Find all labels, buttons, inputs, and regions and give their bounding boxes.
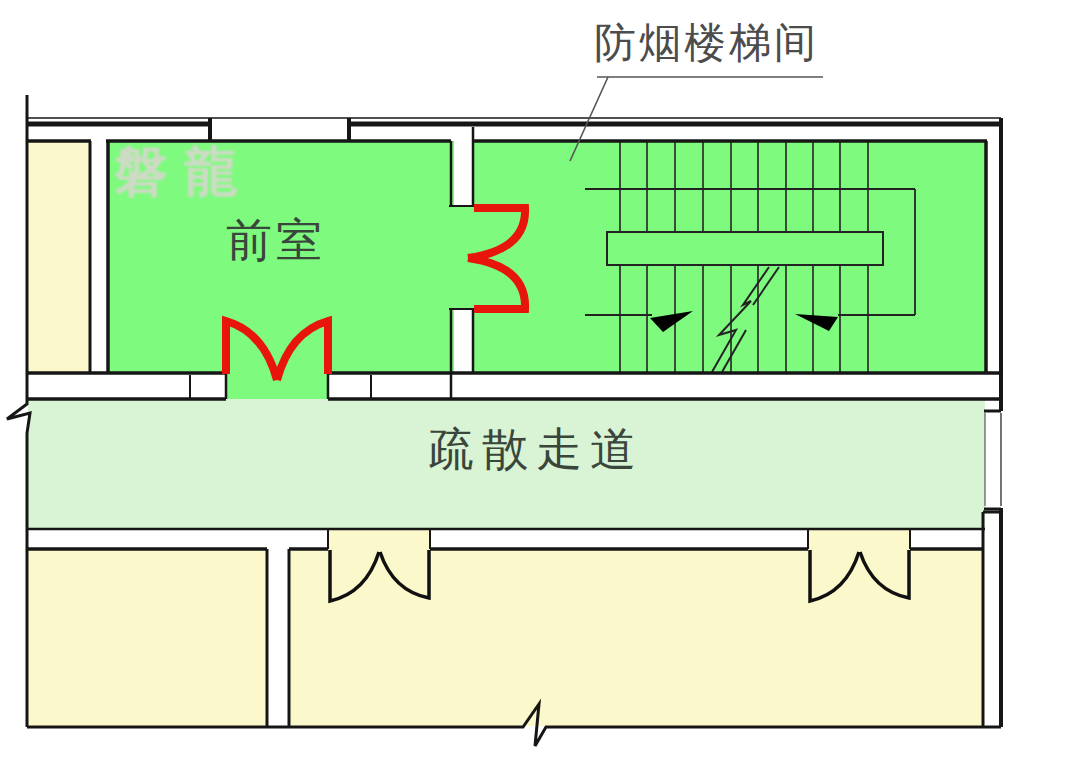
bottom-door-opening-fill-left xyxy=(328,530,431,549)
wall-break-left xyxy=(7,95,30,727)
stairwell-callout-label: 防烟楼梯间 xyxy=(594,22,819,64)
floor-plan-canvas: 磐龍 防烟楼梯间 前室 疏散走道 xyxy=(0,0,1080,758)
watermark: 磐龍 xyxy=(114,144,254,198)
floor-plan-drawing xyxy=(0,0,1080,758)
stair-handrail xyxy=(607,232,883,265)
corridor-label: 疏散走道 xyxy=(428,426,644,472)
bottom-left-room-fill xyxy=(28,549,268,726)
vestibule-label: 前室 xyxy=(226,217,326,263)
side-room-fill xyxy=(28,141,90,373)
bottom-door-opening-fill-right xyxy=(808,530,911,549)
